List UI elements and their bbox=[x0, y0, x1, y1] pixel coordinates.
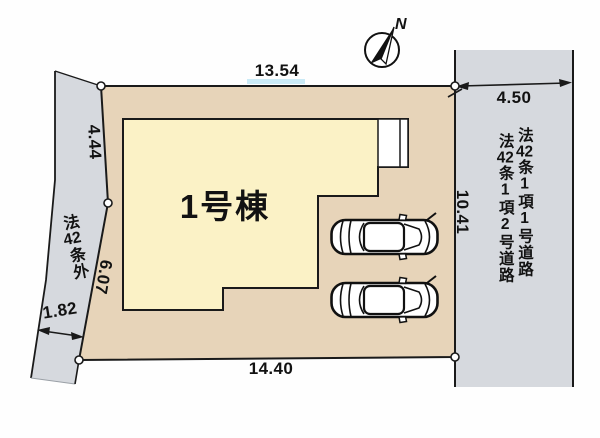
dimension-top-label: 13.54 bbox=[237, 61, 317, 81]
dimension-bottom-label: 14.40 bbox=[231, 359, 311, 379]
building-porch bbox=[378, 119, 408, 167]
boundary-marker bbox=[97, 82, 105, 90]
dimension-left-upper-label: 4.44 bbox=[83, 119, 105, 166]
car-top bbox=[332, 213, 438, 260]
building-name-label: 1号棟 bbox=[145, 180, 305, 228]
road-right-label-primary: 法42条1項1号道路 bbox=[516, 127, 532, 287]
road-right-label-secondary: 法42条1項2号道路 bbox=[496, 127, 512, 287]
site-plan: 13.54 4.50 14.40 10.41 4.44 6.07 1.82 1号… bbox=[0, 0, 600, 438]
boundary-marker bbox=[75, 356, 83, 364]
road-right-classification-labels: 法42条1項1号道路 法42条1項2号道路 bbox=[488, 127, 532, 287]
boundary-marker bbox=[451, 82, 459, 90]
boundary-marker bbox=[104, 199, 112, 207]
boundary-marker bbox=[451, 353, 459, 361]
north-compass bbox=[365, 27, 399, 67]
north-label: N bbox=[395, 16, 407, 34]
dimension-right-road-width-label: 4.50 bbox=[479, 88, 549, 108]
car-bottom bbox=[332, 276, 438, 323]
dimension-right-edge-label: 10.41 bbox=[452, 184, 472, 240]
